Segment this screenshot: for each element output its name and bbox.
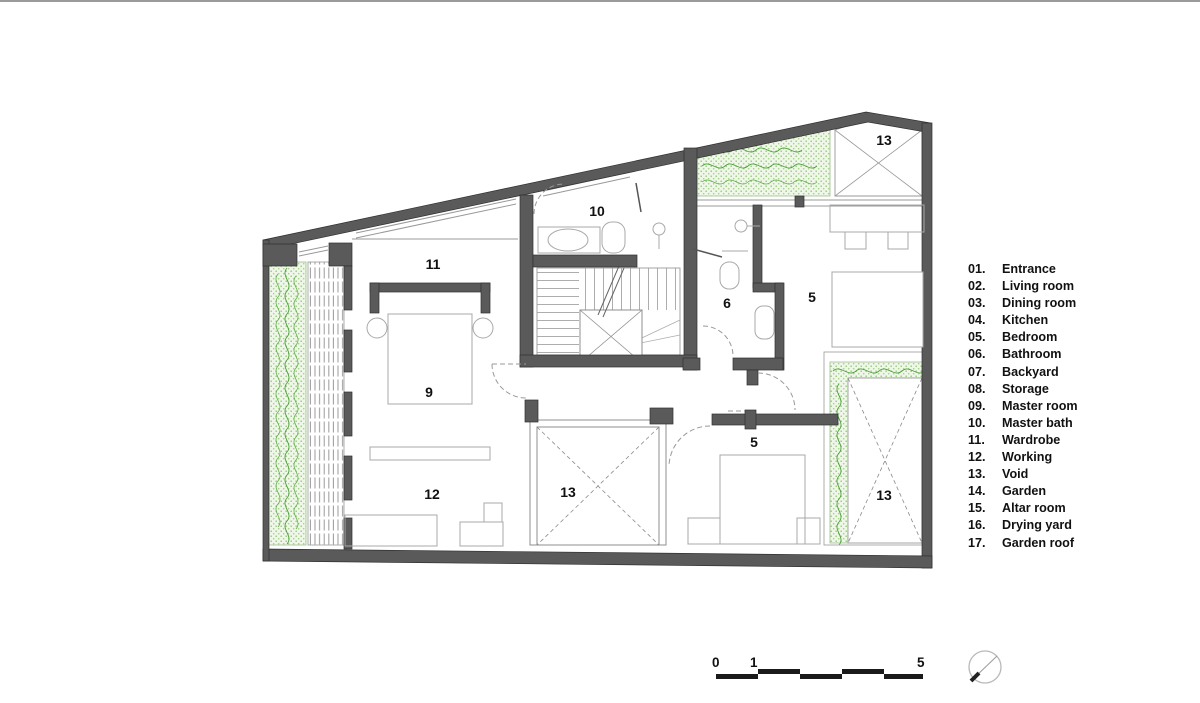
legend-item-number: 15. [968,501,995,515]
legend-item-label: Master bath [1002,416,1073,430]
legend-item: 05.Bedroom [968,330,1138,347]
legend-item: 16.Drying yard [968,518,1138,535]
legend-item: 02.Living room [968,279,1138,296]
north-arrow-icon [969,651,1001,683]
floor-plan-page: 10 13 11 6 5 9 12 13 5 13 01.Entrance 02… [0,0,1200,703]
bed-top-right [830,205,924,347]
room-label-void-bottomright: 13 [876,487,892,503]
legend-item-label: Garden roof [1002,536,1074,550]
void-bottom-middle [530,420,666,545]
room-label-void-middle: 13 [560,484,576,500]
room-label-void-topright: 13 [876,132,892,148]
room-label-bathroom: 6 [723,295,731,311]
legend-item: 06.Bathroom [968,347,1138,364]
legend-item: 09.Master room [968,399,1138,416]
legend-item-label: Kitchen [1002,313,1048,327]
legend-item-number: 13. [968,467,995,481]
legend-item-number: 12. [968,450,995,464]
legend-item-label: Void [1002,467,1028,481]
legend-item: 03.Dining room [968,296,1138,313]
room-label-bedroom-topright: 5 [808,289,816,305]
legend-item-label: Dining room [1002,296,1076,310]
garden-hatch-left [268,262,306,545]
scale-label-5: 5 [917,655,925,670]
scale-label-0: 0 [712,655,720,670]
legend-item-number: 04. [968,313,995,327]
legend-item: 10.Master bath [968,416,1138,433]
legend-item: 13.Void [968,467,1138,484]
legend-item-number: 11. [968,433,995,447]
legend-item-label: Storage [1002,382,1049,396]
legend-item-number: 03. [968,296,995,310]
legend-item-number: 02. [968,279,995,293]
void-top-right [835,119,922,196]
legend-item-label: Altar room [1002,501,1066,515]
scale-label-1: 1 [750,655,758,670]
legend-item-label: Garden [1002,484,1046,498]
legend-item-number: 07. [968,365,995,379]
legend-item: 15.Altar room [968,501,1138,518]
legend-item-label: Wardrobe [1002,433,1060,447]
legend-item-number: 16. [968,518,995,532]
room-label-masterroom: 9 [425,384,433,400]
legend-item: 08.Storage [968,382,1138,399]
legend-item-label: Master room [1002,399,1078,413]
scale-bar [716,669,923,679]
legend-item: 14.Garden [968,484,1138,501]
legend-item-label: Bedroom [1002,330,1057,344]
legend-item-label: Living room [1002,279,1074,293]
legend-item: 11.Wardrobe [968,433,1138,450]
legend-item: 12.Working [968,450,1138,467]
room-label-working: 12 [424,486,440,502]
legend-item-number: 17. [968,536,995,550]
legend-item-label: Backyard [1002,365,1059,379]
legend-item-number: 10. [968,416,995,430]
legend-item: 07.Backyard [968,365,1138,382]
legend-item-number: 01. [968,262,995,276]
legend-item-label: Bathroom [1002,347,1061,361]
staircase [537,266,680,363]
legend-item: 04.Kitchen [968,313,1138,330]
legend-item-number: 05. [968,330,995,344]
legend-item-label: Entrance [1002,262,1056,276]
legend-item-label: Working [1002,450,1052,464]
louver-strip [308,262,344,545]
legend-item-number: 08. [968,382,995,396]
bed-bottom [688,455,820,544]
room-label-masterbath: 10 [589,203,605,219]
legend-item-number: 09. [968,399,995,413]
room-label-wardrobe: 11 [426,256,441,272]
legend-item: 17.Garden roof [968,536,1138,553]
legend: 01.Entrance 02.Living room 03.Dining roo… [968,262,1138,553]
legend-item-number: 06. [968,347,995,361]
room-label-bedroom-bottom: 5 [750,434,758,450]
legend-item-number: 14. [968,484,995,498]
legend-item-label: Drying yard [1002,518,1072,532]
legend-item: 01.Entrance [968,262,1138,279]
